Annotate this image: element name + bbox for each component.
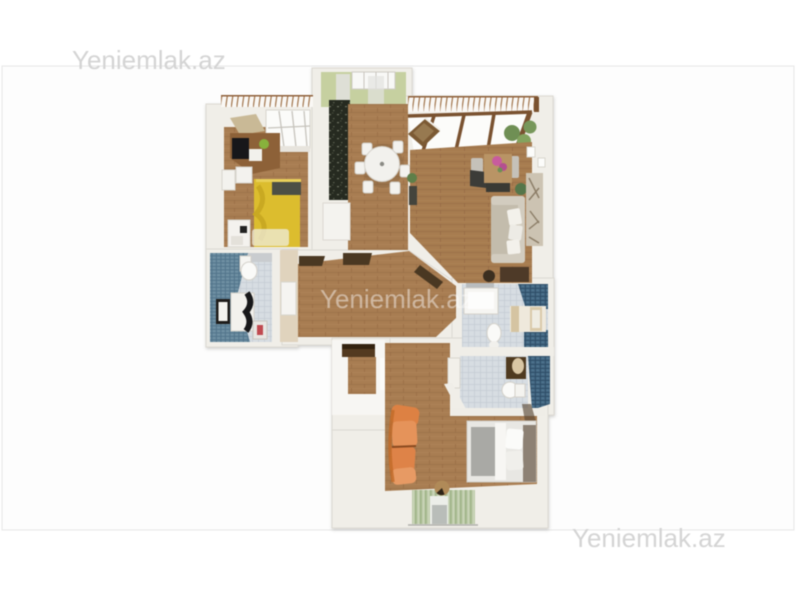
svg-text:Yeniemlak.az: Yeniemlak.az	[572, 523, 726, 553]
svg-text:Yeniemlak.az: Yeniemlak.az	[72, 45, 226, 75]
svg-text:Yeniemlak.az: Yeniemlak.az	[320, 284, 474, 314]
